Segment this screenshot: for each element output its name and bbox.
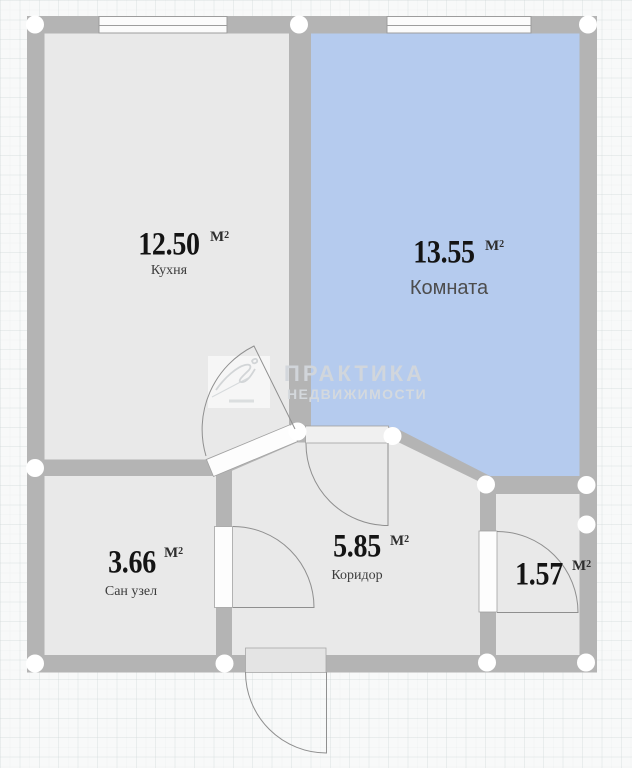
svg-text:ПРАКТИКА: ПРАКТИКА (284, 361, 425, 386)
svg-text:НЕДВИЖИМОСТИ: НЕДВИЖИМОСТИ (287, 386, 427, 402)
